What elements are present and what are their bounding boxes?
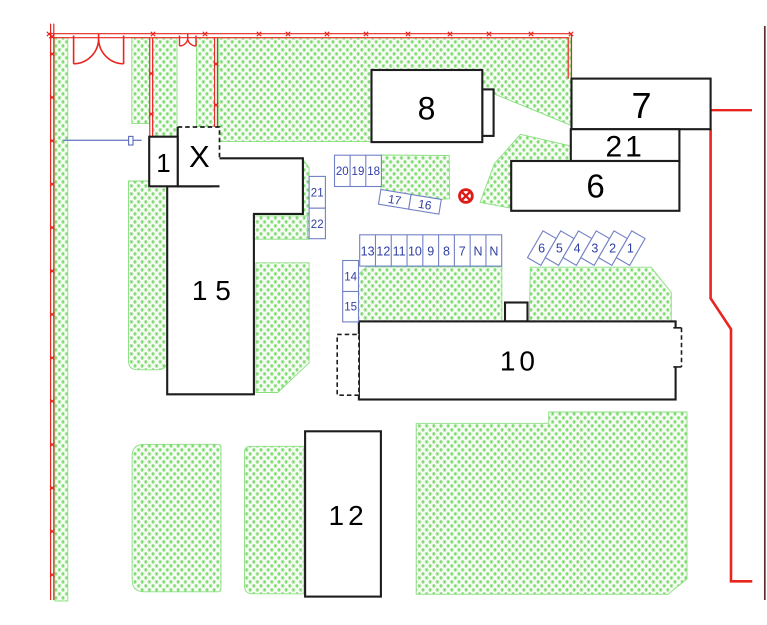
svg-text:8: 8	[443, 245, 450, 259]
svg-text:6: 6	[538, 242, 545, 256]
svg-text:13: 13	[361, 245, 375, 259]
svg-text:7: 7	[631, 85, 651, 126]
svg-text:5: 5	[556, 242, 563, 256]
svg-text:16: 16	[417, 197, 433, 213]
svg-text:1 5: 1 5	[192, 275, 231, 306]
svg-text:3: 3	[591, 242, 598, 256]
svg-text:1: 1	[627, 242, 634, 256]
svg-text:1: 1	[156, 148, 170, 178]
svg-text:15: 15	[344, 302, 357, 314]
svg-text:20: 20	[336, 166, 349, 178]
svg-text:9: 9	[427, 245, 434, 259]
svg-text:8: 8	[418, 90, 436, 126]
svg-text:11: 11	[393, 245, 406, 259]
svg-text:N: N	[474, 245, 483, 259]
svg-text:22: 22	[311, 219, 324, 231]
svg-text:14: 14	[344, 272, 357, 284]
svg-text:21: 21	[606, 131, 645, 164]
svg-text:6: 6	[586, 168, 604, 205]
svg-text:17: 17	[387, 192, 403, 208]
svg-text:X: X	[189, 139, 210, 174]
svg-text:2: 2	[609, 242, 616, 256]
svg-text:19: 19	[352, 166, 365, 178]
svg-text:12: 12	[376, 245, 390, 259]
svg-text:10: 10	[500, 346, 539, 377]
svg-text:12: 12	[329, 500, 368, 531]
svg-text:18: 18	[367, 166, 380, 178]
svg-text:10: 10	[408, 245, 422, 259]
svg-text:N: N	[489, 245, 498, 259]
svg-text:7: 7	[459, 245, 466, 259]
svg-text:21: 21	[311, 188, 324, 200]
svg-text:4: 4	[574, 242, 581, 256]
